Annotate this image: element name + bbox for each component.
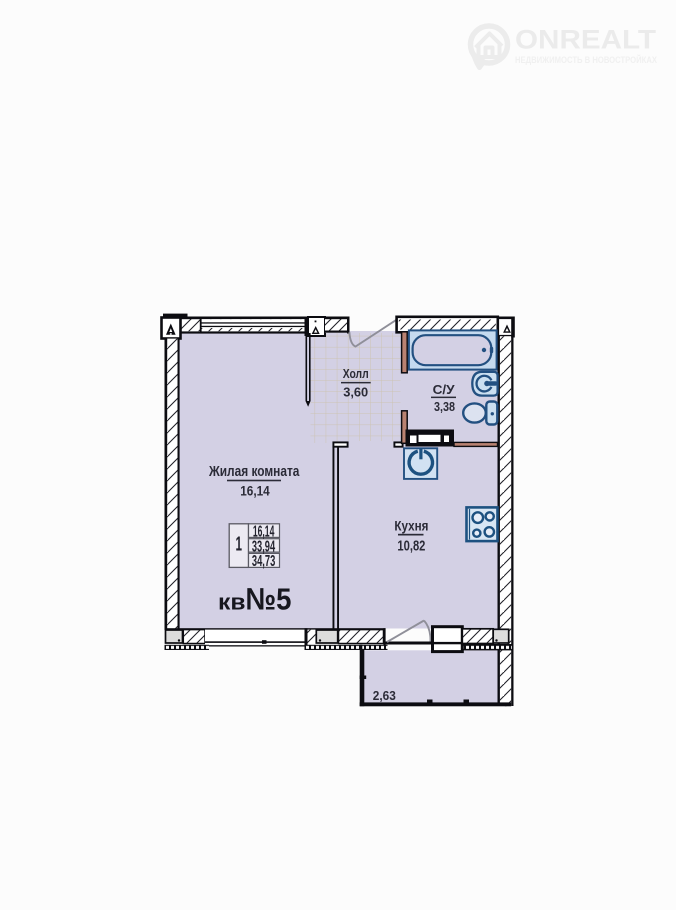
svg-text:ONREALT: ONREALT (515, 25, 657, 55)
svg-text:3,38: 3,38 (434, 399, 455, 414)
svg-text:Холл: Холл (343, 366, 369, 381)
svg-text:НЕДВИЖИМОСТЬ В НОВОСТРОЙКАХ: НЕДВИЖИМОСТЬ В НОВОСТРОЙКАХ (515, 54, 657, 65)
svg-text:3,60: 3,60 (343, 384, 368, 399)
svg-text:Жилая комната: Жилая комната (208, 464, 300, 480)
svg-text:1: 1 (235, 534, 242, 556)
svg-text:34,73: 34,73 (252, 553, 276, 570)
svg-text:С/У: С/У (433, 382, 456, 397)
svg-text:Кухня: Кухня (394, 518, 428, 534)
svg-text:2,63: 2,63 (373, 688, 396, 703)
svg-text:10,82: 10,82 (397, 538, 425, 554)
svg-text:16,14: 16,14 (240, 484, 270, 500)
